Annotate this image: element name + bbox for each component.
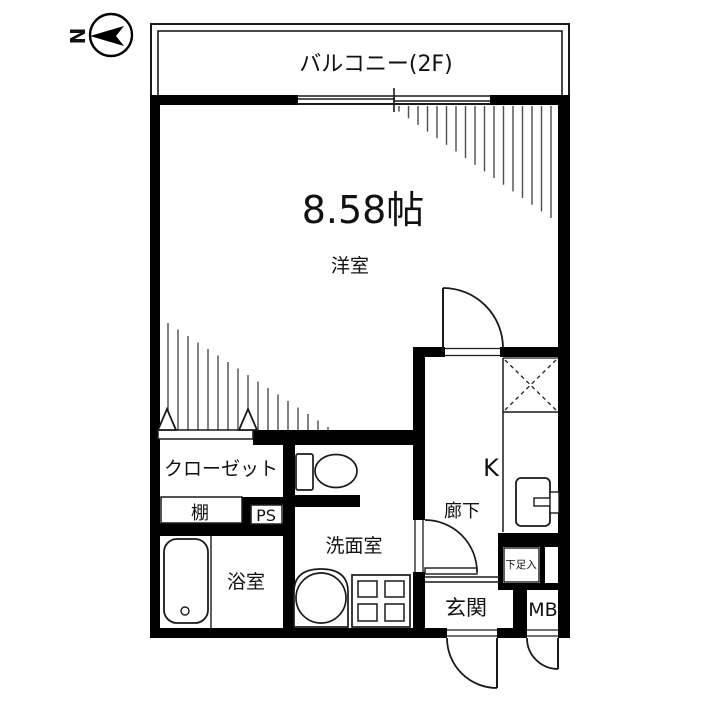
balcony-label: バルコニー(2F) xyxy=(299,52,452,77)
toilet-bowl-icon xyxy=(315,455,357,488)
hallway-label: 廊下 xyxy=(444,501,480,522)
door-swing-arc xyxy=(443,288,503,348)
balcony: バルコニー(2F) xyxy=(151,24,569,104)
wall-segment xyxy=(513,590,527,628)
bathroom-fixtures xyxy=(164,536,211,628)
closet-door-track xyxy=(158,430,253,439)
compass-north-label: N xyxy=(66,28,90,45)
entrance-door xyxy=(447,630,497,688)
bathroom-label: 浴室 xyxy=(227,571,265,593)
door-swing-arc xyxy=(425,520,477,572)
living-room-area-label: 8.58帖 xyxy=(302,188,425,232)
folding-door-triangle-icon xyxy=(239,409,257,430)
wall-segment xyxy=(500,347,570,357)
entrance-step-lines xyxy=(425,577,500,582)
meter-box-label: MB xyxy=(528,599,557,621)
door-swing-arc xyxy=(527,638,558,669)
compass: N xyxy=(66,14,132,56)
wall-segment xyxy=(540,547,545,583)
wall-segment xyxy=(498,583,560,590)
washer-pan-cell xyxy=(385,581,404,597)
fridge-space-x-icon xyxy=(505,360,556,410)
wall-segment xyxy=(283,495,360,507)
floor-plan-drawing: N バルコニー(2F) xyxy=(0,0,720,720)
wall-segment xyxy=(250,497,283,505)
faucet-base-icon xyxy=(550,492,559,513)
floor-plan-page: N バルコニー(2F) xyxy=(0,0,720,720)
wall-segment xyxy=(150,628,447,638)
closet-label: クローゼット xyxy=(164,458,278,480)
wall-segment xyxy=(558,95,570,638)
wall-segment xyxy=(150,95,160,638)
door-swing-arc xyxy=(447,638,497,688)
washing-machine-pan-icon xyxy=(352,575,410,627)
folding-door-triangle-icon xyxy=(158,409,176,430)
wall-segment xyxy=(497,628,527,638)
balcony-window xyxy=(298,88,490,112)
pipe-space-label: PS xyxy=(256,506,276,525)
washer-pan-cell xyxy=(358,604,377,621)
washroom-door xyxy=(415,520,477,574)
washer-pan-cell xyxy=(385,604,404,621)
kitchen-label: K xyxy=(483,454,500,482)
kitchen-zone xyxy=(503,358,559,532)
shelf-label: 棚 xyxy=(191,503,209,524)
compass-needle-icon xyxy=(90,26,124,46)
shoe-cabinet-label: 下足入 xyxy=(505,559,537,571)
living-room-name-label: 洋室 xyxy=(331,255,369,277)
door-leaf xyxy=(425,568,477,574)
wall-segment xyxy=(498,533,570,547)
entrance-label: 玄関 xyxy=(445,596,487,620)
wall-segment xyxy=(150,95,298,105)
washer-pan-cell xyxy=(358,581,377,597)
meter-box-door xyxy=(527,630,558,669)
wall-segment xyxy=(253,430,423,445)
washroom-label: 洗面室 xyxy=(325,535,382,557)
wall-segment xyxy=(413,347,445,357)
toilet-tank-icon xyxy=(296,454,313,490)
bathtub-drain-icon xyxy=(181,607,189,615)
wash-basin-bowl-icon xyxy=(296,573,346,623)
wall-segment xyxy=(413,572,425,638)
living-room-door xyxy=(443,288,503,356)
